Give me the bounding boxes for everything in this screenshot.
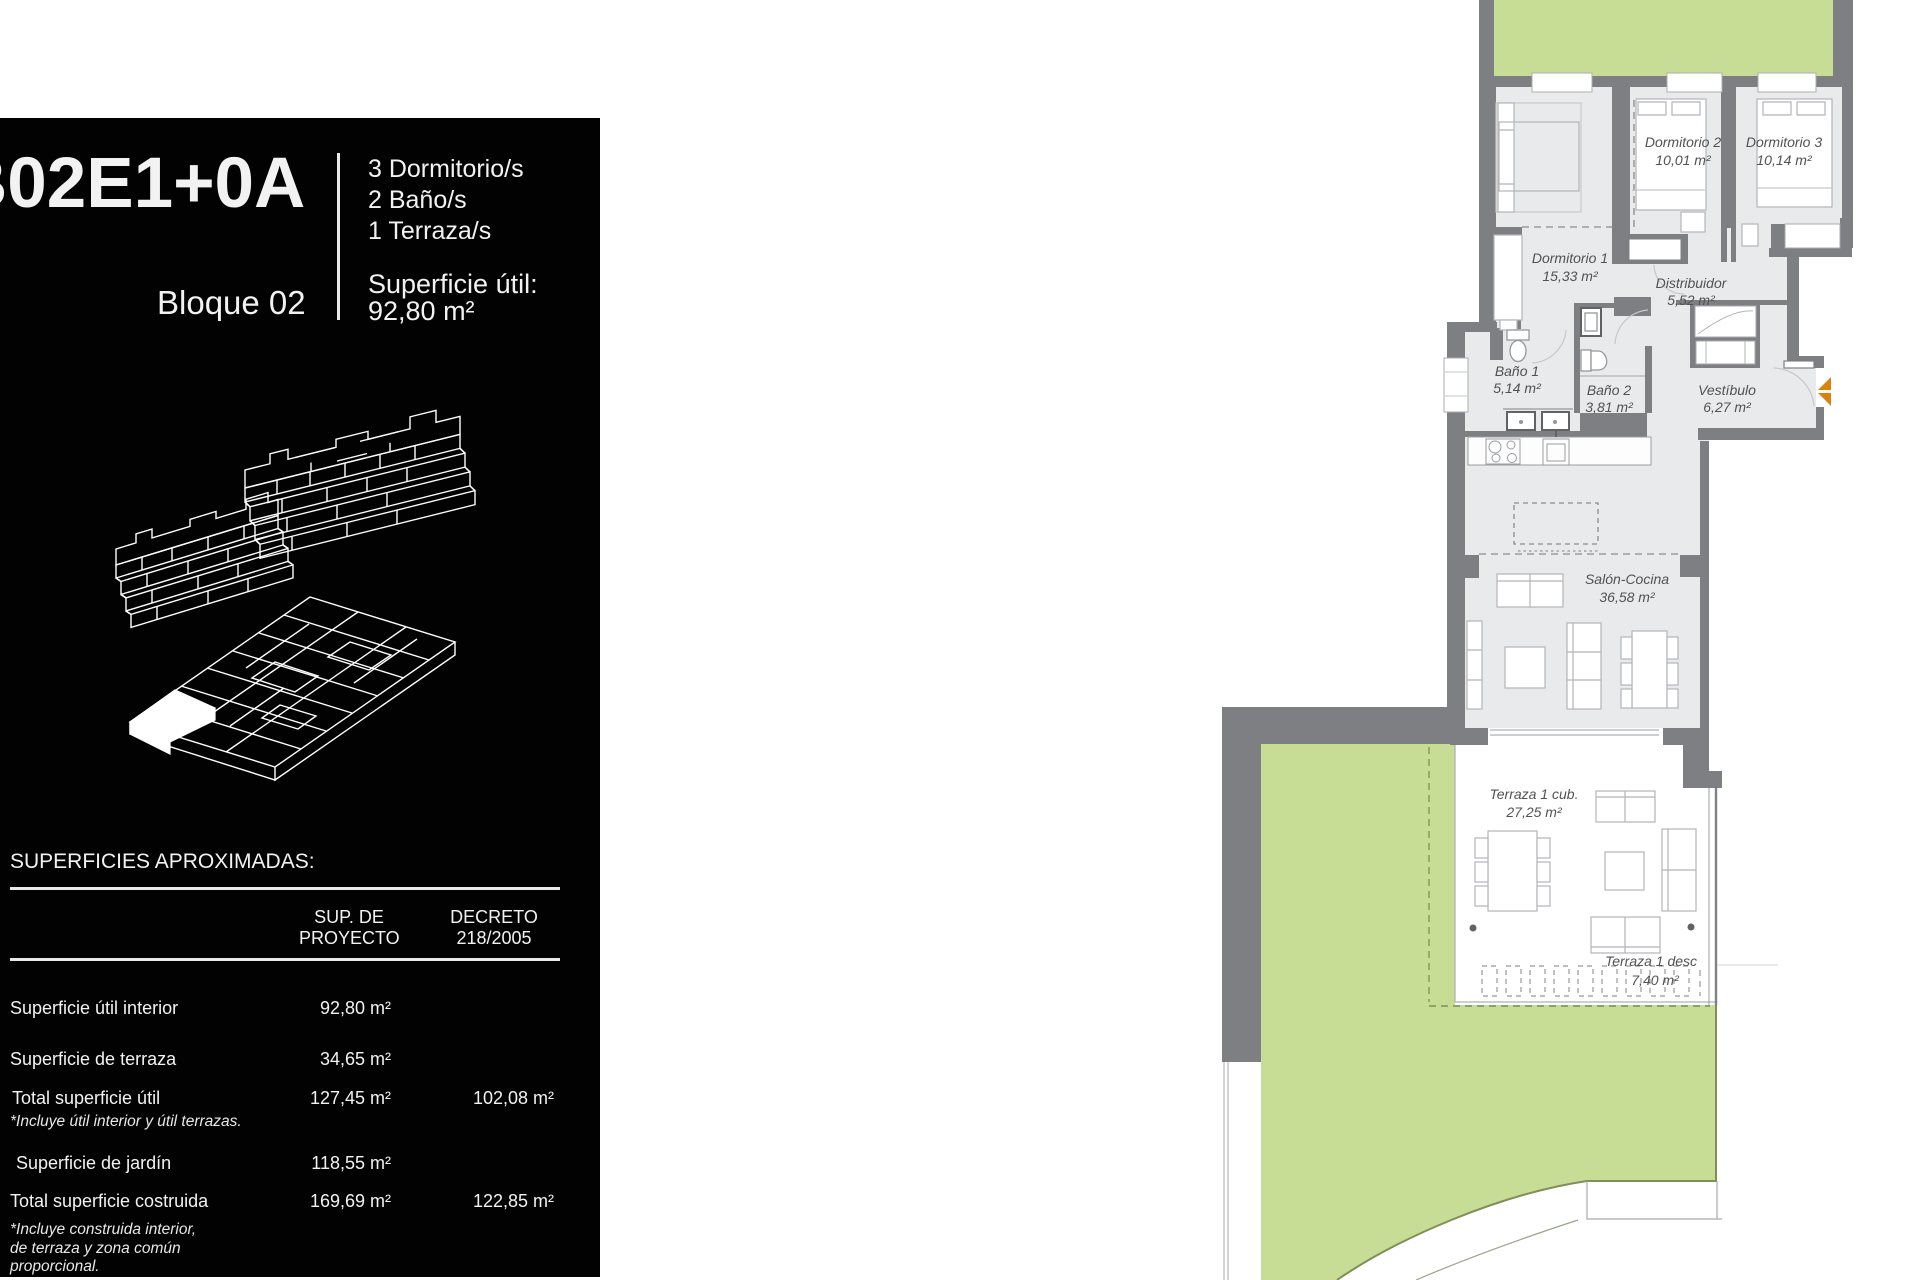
svg-text:Dormitorio 2: Dormitorio 2 — [1645, 134, 1721, 150]
svg-text:Salón-Cocina: Salón-Cocina — [1585, 571, 1669, 587]
svg-text:5,14 m²: 5,14 m² — [1493, 380, 1542, 396]
svg-text:Dormitorio 3: Dormitorio 3 — [1746, 134, 1822, 150]
svg-text:Distribuidor: Distribuidor — [1656, 275, 1728, 291]
svg-text:10,01 m²: 10,01 m² — [1655, 152, 1712, 168]
svg-text:6,27 m²: 6,27 m² — [1703, 399, 1752, 415]
svg-text:15,33 m²: 15,33 m² — [1542, 268, 1599, 284]
svg-text:Terraza 1 desc: Terraza 1 desc — [1605, 953, 1697, 969]
svg-text:Terraza 1 cub.: Terraza 1 cub. — [1490, 786, 1579, 802]
svg-text:5,52 m²: 5,52 m² — [1667, 292, 1716, 308]
svg-text:Baño 2: Baño 2 — [1587, 382, 1632, 398]
svg-text:27,25 m²: 27,25 m² — [1505, 804, 1563, 820]
svg-text:Dormitorio 1: Dormitorio 1 — [1532, 250, 1608, 266]
svg-text:7,40 m²: 7,40 m² — [1631, 972, 1680, 988]
svg-text:3,81 m²: 3,81 m² — [1585, 399, 1634, 415]
svg-text:Vestíbulo: Vestíbulo — [1698, 382, 1756, 398]
svg-text:36,58 m²: 36,58 m² — [1599, 589, 1656, 605]
svg-text:10,14 m²: 10,14 m² — [1756, 152, 1813, 168]
svg-text:Baño 1: Baño 1 — [1495, 363, 1539, 379]
